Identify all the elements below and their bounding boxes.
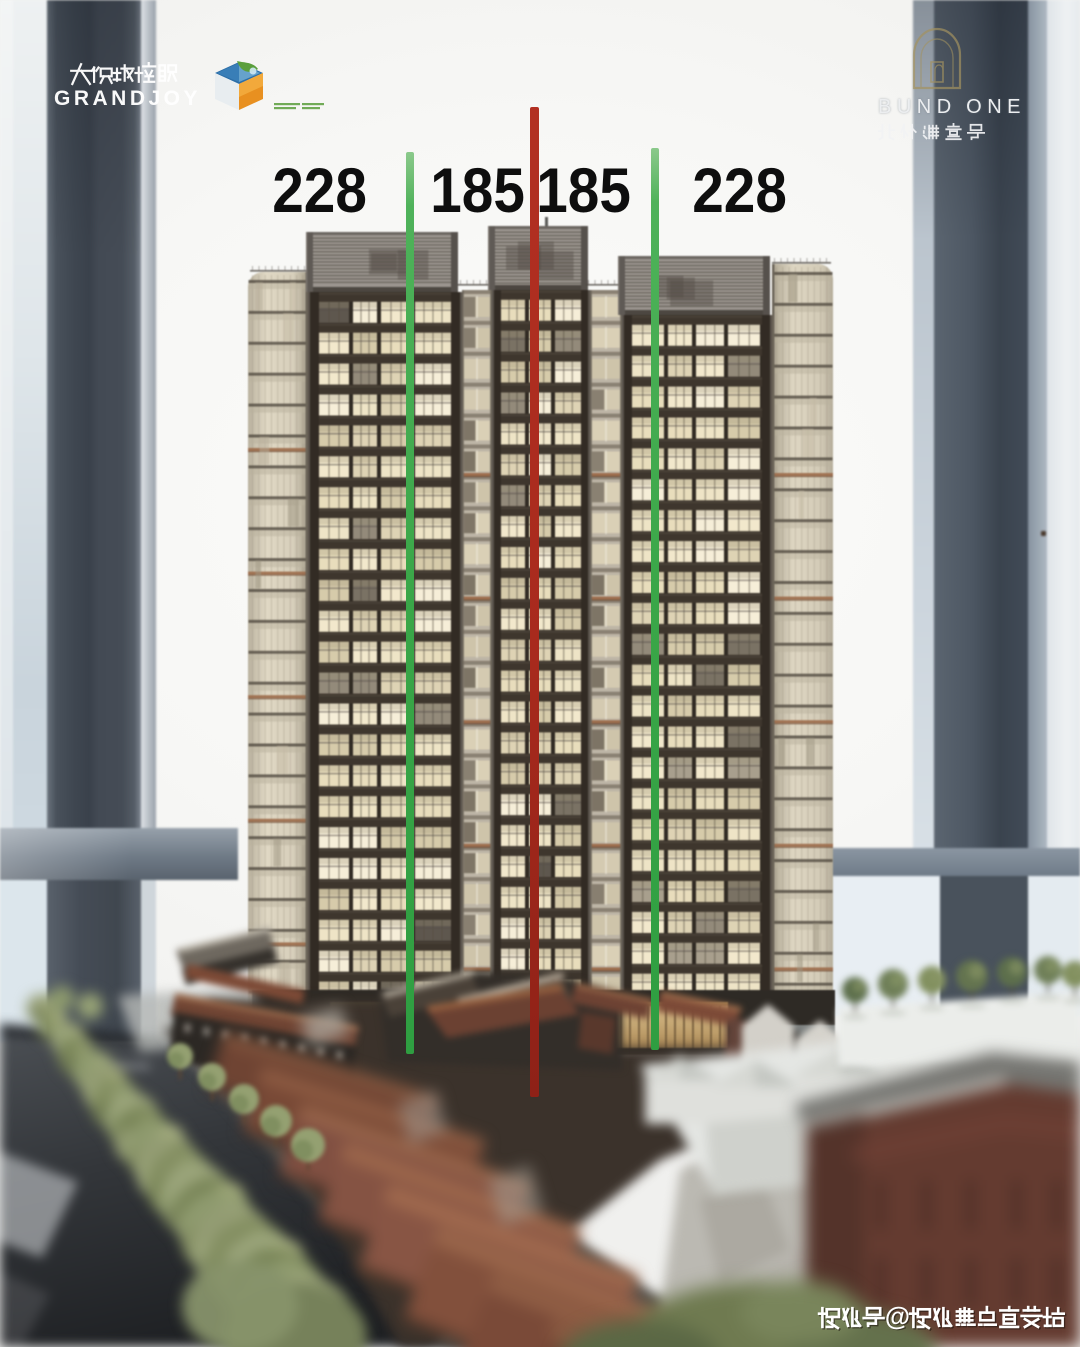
svg-text:@: @ bbox=[885, 1303, 910, 1331]
